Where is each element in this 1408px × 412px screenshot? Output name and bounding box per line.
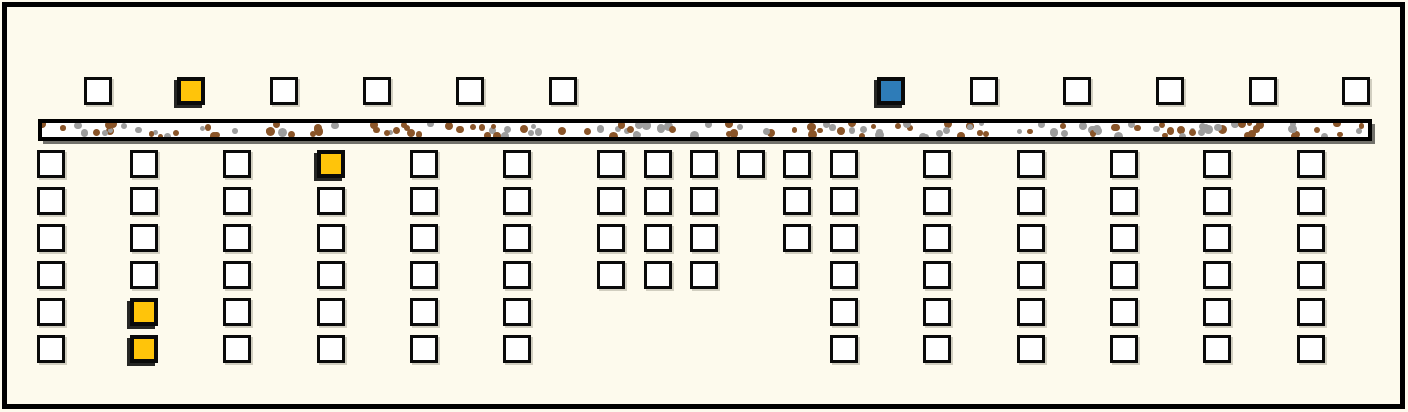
grid-cell-c4-r3[interactable]: [317, 224, 345, 252]
speck-dot: [609, 132, 618, 137]
speck-dot: [1167, 127, 1174, 134]
speck-dot: [74, 123, 81, 129]
speck-dot: [384, 130, 390, 136]
speck-dot: [331, 123, 339, 129]
speck-dot: [1214, 124, 1222, 132]
speck-dot: [1359, 123, 1365, 129]
speck-dot: [792, 127, 797, 132]
grid-cell-c3-r1[interactable]: [223, 150, 251, 178]
speck-dot: [1356, 128, 1362, 134]
grid-cell-c4-r6[interactable]: [317, 335, 345, 363]
grid-cell-c3-r5[interactable]: [223, 298, 251, 326]
top-square-8[interactable]: [970, 77, 998, 105]
grid-cell-c14-r1[interactable]: [1017, 150, 1045, 178]
grid-cell-c9-r4[interactable]: [690, 261, 718, 289]
grid-cell-c2-r2[interactable]: [130, 187, 158, 215]
speck-dot: [849, 127, 856, 134]
grid-cell-c12-r4[interactable]: [830, 261, 858, 289]
grid-cell-c3-r2[interactable]: [223, 187, 251, 215]
grid-cell-c16-r4[interactable]: [1203, 261, 1231, 289]
speckled-bar: [38, 119, 1372, 141]
grid-cell-c13-r6[interactable]: [923, 335, 951, 363]
grid-cell-c11-r2[interactable]: [783, 187, 811, 215]
grid-cell-c2-r5[interactable]: [130, 298, 158, 326]
grid-cell-c16-r6[interactable]: [1203, 335, 1231, 363]
speck-dot: [213, 132, 220, 137]
speck-dot: [1027, 129, 1032, 134]
speck-dot: [1093, 125, 1101, 133]
speck-dot: [535, 128, 542, 135]
grid-cell-c17-r5[interactable]: [1297, 298, 1325, 326]
speck-dot: [60, 125, 65, 130]
speck-dot: [943, 127, 950, 134]
grid-cell-c6-r3[interactable]: [503, 224, 531, 252]
speck-dot: [584, 128, 591, 135]
grid-cell-c17-r3[interactable]: [1297, 224, 1325, 252]
grid-cell-c16-r1[interactable]: [1203, 150, 1231, 178]
grid-cell-c17-r1[interactable]: [1297, 150, 1325, 178]
grid-cell-c15-r1[interactable]: [1110, 150, 1138, 178]
speck-dot: [1314, 127, 1320, 133]
speck-dot: [871, 124, 876, 129]
speck-dot: [1238, 123, 1246, 128]
speck-dot: [1112, 124, 1119, 131]
top-square-7[interactable]: [877, 77, 905, 105]
top-square-12[interactable]: [1342, 77, 1370, 105]
grid-cell-c3-r6[interactable]: [223, 335, 251, 363]
speck-dot: [1244, 132, 1252, 137]
speck-dot: [493, 132, 501, 137]
grid-cell-c12-r5[interactable]: [830, 298, 858, 326]
speck-dot: [725, 123, 733, 128]
speck-dot: [501, 132, 509, 137]
grid-cell-c10-r1[interactable]: [737, 150, 765, 178]
speck-dot: [445, 123, 453, 130]
grid-cell-c17-r6[interactable]: [1297, 335, 1325, 363]
speck-dot: [288, 131, 295, 137]
grid-cell-c12-r6[interactable]: [830, 335, 858, 363]
grid-cell-c14-r6[interactable]: [1017, 335, 1045, 363]
diagram-canvas: [0, 0, 1408, 412]
speck-dot: [427, 123, 433, 127]
speck-dot: [266, 127, 275, 136]
grid-cell-c8-r3[interactable]: [644, 224, 672, 252]
speck-dot: [1134, 125, 1141, 132]
grid-cell-c15-r6[interactable]: [1110, 335, 1138, 363]
grid-cell-c5-r1[interactable]: [410, 150, 438, 178]
speck-dot: [393, 127, 400, 134]
grid-cell-c2-r4[interactable]: [130, 261, 158, 289]
speck-dot: [93, 129, 100, 136]
grid-cell-c1-r6[interactable]: [37, 335, 65, 363]
grid-cell-c7-r3[interactable]: [597, 224, 625, 252]
speckled-bar-inner: [42, 123, 1368, 137]
grid-cell-c2-r3[interactable]: [130, 224, 158, 252]
grid-cell-c12-r1[interactable]: [830, 150, 858, 178]
speck-dot: [158, 134, 164, 137]
speck-dot: [936, 130, 943, 137]
speck-dot: [983, 131, 989, 137]
speck-dot: [1256, 123, 1264, 129]
grid-cell-c16-r2[interactable]: [1203, 187, 1231, 215]
grid-cell-c3-r4[interactable]: [223, 261, 251, 289]
speck-dot: [121, 123, 127, 129]
speck-dot: [558, 127, 566, 135]
grid-cell-c1-r1[interactable]: [37, 150, 65, 178]
grid-cell-c5-r4[interactable]: [410, 261, 438, 289]
speck-dot: [1189, 129, 1196, 136]
speck-dot: [817, 128, 822, 133]
grid-cell-c8-r4[interactable]: [644, 261, 672, 289]
top-square-5[interactable]: [456, 77, 484, 105]
speck-dot: [105, 123, 113, 129]
speck-dot: [829, 124, 835, 130]
grid-cell-c17-r4[interactable]: [1297, 261, 1325, 289]
speck-dot: [726, 131, 732, 137]
speck-dot: [456, 126, 464, 134]
speck-dot: [401, 123, 407, 128]
speck-dot: [205, 124, 211, 130]
speck-dot: [669, 126, 676, 133]
grid-cell-c13-r5[interactable]: [923, 298, 951, 326]
speck-dot: [470, 124, 476, 130]
top-square-11[interactable]: [1249, 77, 1277, 105]
top-square-9[interactable]: [1063, 77, 1091, 105]
speck-dot: [977, 130, 983, 136]
grid-cell-c15-r3[interactable]: [1110, 224, 1138, 252]
speck-dot: [705, 123, 712, 128]
speck-dot: [273, 123, 280, 128]
grid-cell-c7-r2[interactable]: [597, 187, 625, 215]
top-square-6[interactable]: [549, 77, 577, 105]
speck-dot: [1247, 123, 1252, 126]
grid-cell-c7-r4[interactable]: [597, 261, 625, 289]
speck-dot: [1153, 126, 1159, 132]
grid-cell-c8-r1[interactable]: [644, 150, 672, 178]
speck-dot: [1333, 123, 1340, 127]
speck-dot: [859, 133, 865, 137]
grid-cell-c5-r6[interactable]: [410, 335, 438, 363]
grid-cell-c16-r3[interactable]: [1203, 224, 1231, 252]
speck-dot: [642, 123, 650, 130]
speck-dot: [657, 124, 666, 133]
speck-dot: [232, 128, 238, 134]
top-square-4[interactable]: [363, 77, 391, 105]
speck-dot: [895, 123, 901, 129]
speck-dot: [1198, 129, 1205, 136]
speck-dot: [149, 131, 155, 137]
speck-dot: [876, 129, 882, 135]
speck-dot: [837, 127, 845, 135]
grid-cell-c9-r1[interactable]: [690, 150, 718, 178]
speck-dot: [310, 131, 317, 137]
grid-cell-c14-r2[interactable]: [1017, 187, 1045, 215]
grid-cell-c13-r3[interactable]: [923, 224, 951, 252]
speck-dot: [1038, 123, 1045, 128]
grid-cell-c12-r2[interactable]: [830, 187, 858, 215]
grid-cell-c4-r5[interactable]: [317, 298, 345, 326]
speck-dot: [479, 124, 486, 131]
grid-cell-c14-r4[interactable]: [1017, 261, 1045, 289]
speck-dot: [1060, 123, 1066, 129]
grid-cell-c6-r2[interactable]: [503, 187, 531, 215]
grid-cell-c6-r5[interactable]: [503, 298, 531, 326]
speck-dot: [957, 132, 965, 137]
grid-cell-c3-r3[interactable]: [223, 224, 251, 252]
grid-cell-c6-r6[interactable]: [503, 335, 531, 363]
speck-dot: [1050, 128, 1059, 137]
grid-cell-c14-r3[interactable]: [1017, 224, 1045, 252]
grid-cell-c1-r4[interactable]: [37, 261, 65, 289]
grid-cell-c9-r3[interactable]: [690, 224, 718, 252]
grid-cell-c5-r3[interactable]: [410, 224, 438, 252]
speck-dot: [737, 124, 743, 130]
speck-dot: [278, 128, 287, 137]
grid-cell-c5-r5[interactable]: [410, 298, 438, 326]
grid-cell-c9-r2[interactable]: [690, 187, 718, 215]
speck-dot: [627, 126, 634, 133]
speck-dot: [808, 130, 817, 137]
grid-cell-c4-r4[interactable]: [317, 261, 345, 289]
grid-cell-c2-r6[interactable]: [130, 335, 158, 363]
grid-cell-c11-r1[interactable]: [783, 150, 811, 178]
speck-dot: [1179, 133, 1186, 137]
top-square-2[interactable]: [177, 77, 205, 105]
grid-cell-c15-r5[interactable]: [1110, 298, 1138, 326]
speck-dot: [520, 125, 528, 133]
speck-dot: [164, 133, 171, 137]
speck-dot: [1321, 133, 1328, 137]
speck-dot: [81, 129, 89, 137]
speck-dot: [491, 124, 496, 129]
speck-dot: [1017, 129, 1022, 134]
speck-dot: [690, 131, 699, 137]
grid-cell-c6-r1[interactable]: [503, 150, 531, 178]
speck-dot: [979, 123, 984, 126]
grid-cell-c8-r2[interactable]: [644, 187, 672, 215]
grid-cell-c1-r5[interactable]: [37, 298, 65, 326]
grid-cell-c4-r2[interactable]: [317, 187, 345, 215]
speck-dot: [200, 126, 205, 131]
speck-dot: [1337, 132, 1343, 137]
grid-cell-c12-r3[interactable]: [830, 224, 858, 252]
grid-cell-c14-r5[interactable]: [1017, 298, 1045, 326]
grid-cell-c5-r2[interactable]: [410, 187, 438, 215]
grid-cell-c13-r1[interactable]: [923, 150, 951, 178]
grid-cell-c6-r4[interactable]: [503, 261, 531, 289]
speck-dot: [42, 123, 46, 128]
speck-dot: [597, 125, 605, 133]
grid-cell-c2-r1[interactable]: [130, 150, 158, 178]
grid-cell-c17-r2[interactable]: [1297, 187, 1325, 215]
top-square-10[interactable]: [1156, 77, 1184, 105]
top-square-1[interactable]: [84, 77, 112, 105]
speck-dot: [922, 134, 928, 137]
speck-dot: [102, 130, 108, 136]
speck-dot: [173, 130, 179, 136]
speck-dot: [416, 131, 422, 137]
grid-cell-c7-r1[interactable]: [597, 150, 625, 178]
grid-cell-c1-r2[interactable]: [37, 187, 65, 215]
grid-cell-c4-r1[interactable]: [317, 150, 345, 178]
grid-cell-c15-r4[interactable]: [1110, 261, 1138, 289]
grid-cell-c16-r5[interactable]: [1203, 298, 1231, 326]
speck-dot: [1159, 123, 1165, 128]
speck-dot: [1114, 132, 1123, 137]
top-square-3[interactable]: [270, 77, 298, 105]
grid-cell-c13-r2[interactable]: [923, 187, 951, 215]
speck-dot: [635, 132, 641, 137]
speck-dot: [1079, 123, 1087, 130]
grid-cell-c13-r4[interactable]: [923, 261, 951, 289]
speck-dot: [528, 130, 534, 136]
grid-cell-c15-r2[interactable]: [1110, 187, 1138, 215]
grid-cell-c1-r3[interactable]: [37, 224, 65, 252]
speck-dot: [1061, 130, 1069, 137]
grid-cell-c11-r3[interactable]: [783, 224, 811, 252]
speck-dot: [135, 127, 142, 134]
